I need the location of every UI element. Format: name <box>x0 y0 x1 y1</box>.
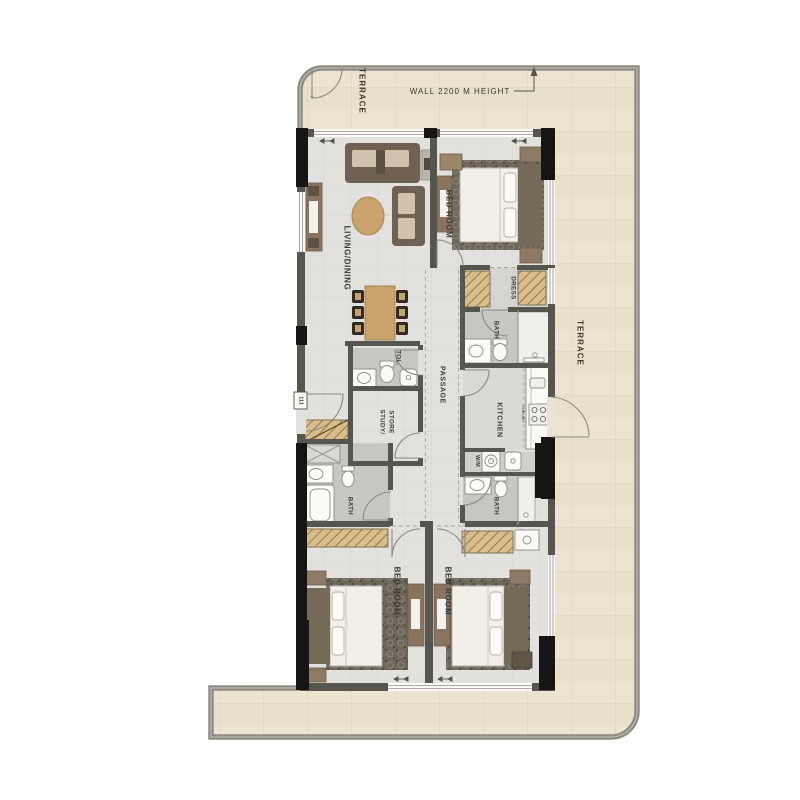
hob-unit <box>529 404 548 425</box>
label-passage: PASSAGE <box>439 366 446 404</box>
window-top-right <box>440 129 533 137</box>
label-bath-left: BATH <box>347 497 354 515</box>
label-dress: DRESS <box>510 276 517 299</box>
bedroom-top-dresser <box>440 154 462 170</box>
label-bedroom-left: BED ROOM <box>393 567 402 616</box>
label-terrace-right: TERRACE <box>576 320 585 366</box>
tv-unit-living <box>306 183 322 251</box>
living-sofa-main <box>345 143 420 183</box>
label-bath-right: BATH <box>493 497 500 515</box>
dress-wardrobe-left <box>464 271 490 307</box>
label-living-dining: LIVING/DINING <box>343 226 352 291</box>
label-wall-note: WALL 2200 M HEIGHT <box>410 87 511 96</box>
window-right-dress <box>548 268 555 304</box>
label-terrace-top: TERRACE <box>358 68 367 114</box>
label-bath-top: BATH <box>493 321 500 339</box>
label-toilet: TOL. <box>395 350 402 366</box>
label-study-line1: STUDY/ <box>379 409 386 434</box>
bedroom-left-wardrobe <box>306 529 388 547</box>
window-left-living <box>297 192 305 252</box>
window-right-bedroom-bottom <box>548 555 555 636</box>
dress-wardrobe-right <box>518 271 546 305</box>
dining-set <box>352 286 408 340</box>
window-bottom <box>388 683 532 691</box>
bed-top <box>452 147 544 263</box>
window-top-left <box>314 129 425 137</box>
label-kitchen: KITCHEN <box>496 402 503 437</box>
label-hob-unit: HOB UNIT <box>521 405 525 423</box>
label-bedroom-top: BED ROOM <box>445 190 454 239</box>
bedroom-right-dresser <box>515 530 539 550</box>
label-bedroom-right: BED ROOM <box>444 567 453 616</box>
window-right-bedroom-top <box>548 180 555 265</box>
bed-bottom-right <box>446 570 532 670</box>
bedroom-right-wardrobe <box>462 531 513 553</box>
floor-plan-page: TERRACE TERRACE WALL 2200 M HEIGHT LIVIN… <box>0 0 800 800</box>
living-sofa-second <box>392 186 425 246</box>
label-wm: W/M <box>474 455 480 467</box>
coffee-table <box>352 197 384 235</box>
label-study-line2: STORE <box>388 410 395 433</box>
floor-plan-drawing: TERRACE TERRACE WALL 2200 M HEIGHT LIVIN… <box>0 0 800 800</box>
label-unit-number: 111 <box>298 396 304 405</box>
